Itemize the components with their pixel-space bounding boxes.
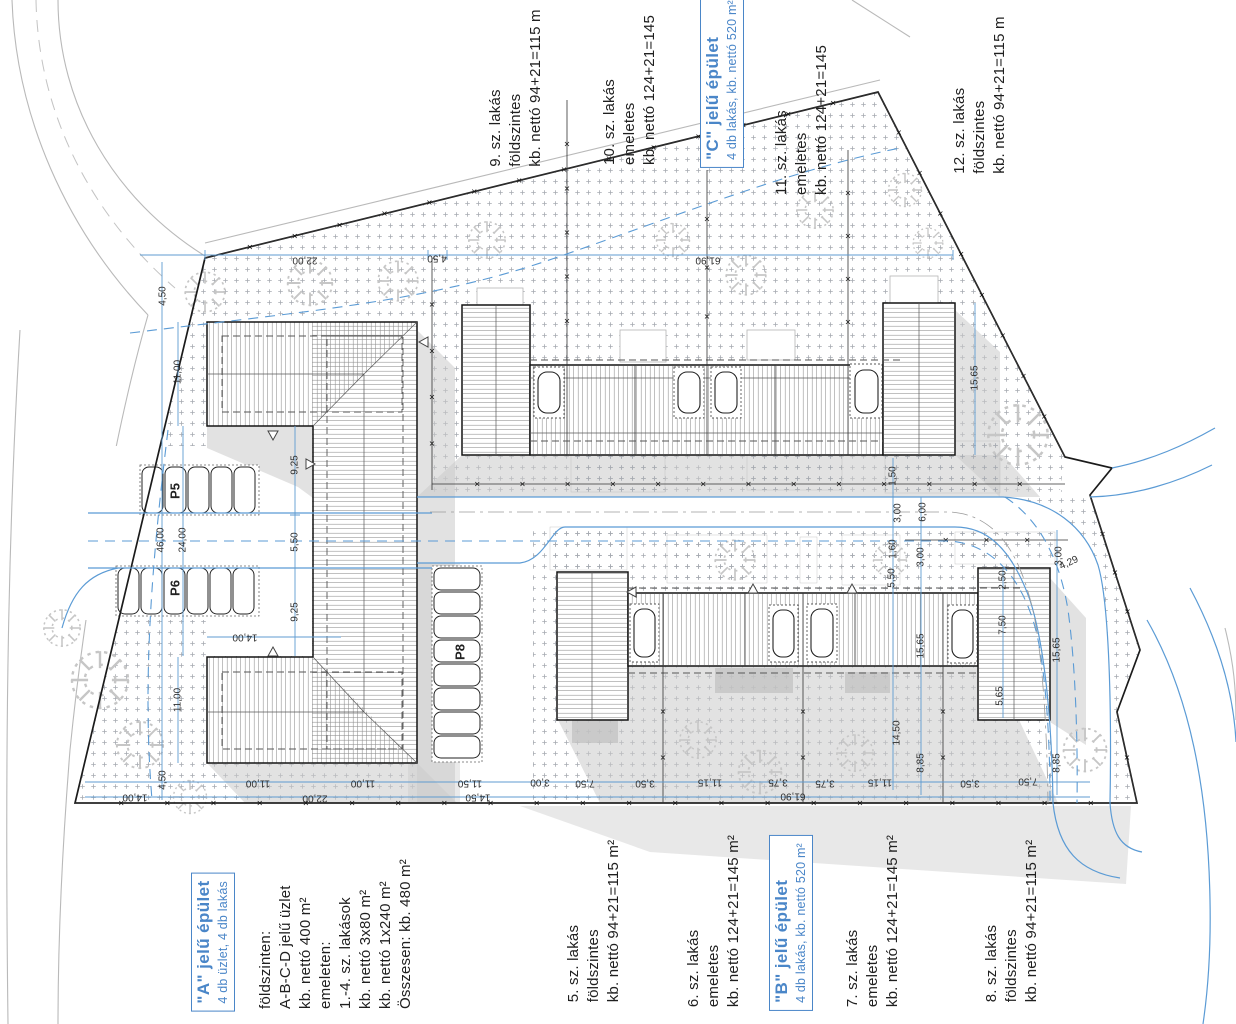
label-unit-11: 11. sz. lakás emeletes kb. nettó 124+21=…	[772, 45, 832, 195]
svg-text:×: ×	[999, 331, 1006, 340]
dim-label: 14,00	[232, 631, 257, 642]
svg-text:×: ×	[949, 799, 956, 808]
label-building-b: "B" jelű épület 4 db lakás, kb. nettó 52…	[769, 835, 813, 1011]
svg-text:×: ×	[704, 312, 711, 321]
dim-label: 11,15	[697, 776, 722, 787]
svg-text:×: ×	[336, 220, 343, 229]
unit-area: kb. nettó 124+21=145 m²	[724, 835, 744, 1007]
unit-name: 5. sz. lakás	[564, 840, 584, 1003]
site-plan-drawing: P5 P6 P8 ×××××××××××××××××××××××××××××××…	[0, 0, 1236, 1024]
svg-text:×: ×	[971, 480, 978, 489]
svg-text:×: ×	[429, 439, 436, 448]
detail-line: A-B-C-D jelű üzlet	[276, 859, 296, 1009]
svg-text:×: ×	[471, 187, 478, 196]
svg-text:×: ×	[718, 799, 725, 808]
svg-text:×: ×	[940, 753, 947, 762]
svg-text:×: ×	[958, 250, 965, 259]
svg-text:×: ×	[704, 214, 711, 223]
parking-p6: P6	[116, 566, 259, 616]
dim-label: 11,00	[173, 359, 184, 384]
svg-text:×: ×	[164, 799, 171, 808]
svg-text:×: ×	[381, 209, 388, 218]
svg-text:×: ×	[881, 480, 888, 489]
svg-text:×: ×	[1024, 536, 1031, 545]
svg-text:×: ×	[349, 799, 356, 808]
svg-text:×: ×	[395, 799, 402, 808]
dim-label: 3,00	[893, 503, 904, 523]
unit-area: kb. nettó 94+21=115 m	[526, 9, 546, 166]
dim-label: 22,00	[302, 792, 327, 803]
unit-name: 8. sz. lakás	[982, 840, 1002, 1003]
svg-text:×: ×	[516, 176, 523, 185]
label-unit-6: 6. sz. lakás emeletes kb. nettó 124+21=1…	[684, 835, 744, 1007]
svg-text:×: ×	[1020, 371, 1027, 380]
svg-text:×: ×	[845, 232, 852, 241]
label-unit-9: 9. sz. lakás földszintes kb. nettó 94+21…	[486, 9, 546, 166]
svg-text:×: ×	[1041, 799, 1048, 808]
svg-text:×: ×	[564, 140, 571, 149]
svg-text:×: ×	[429, 393, 436, 402]
parking-label-p6: P6	[167, 580, 182, 596]
detail-line: Összesen: kb. 480 m²	[396, 859, 416, 1009]
dim-label: 7,50	[998, 615, 1009, 635]
dim-label: 8,85	[916, 753, 927, 773]
dim-label: 15,65	[970, 365, 981, 390]
building-c-subtitle: 4 db lakás, kb. nettó 520 m²	[724, 0, 740, 160]
svg-text:×: ×	[580, 799, 587, 808]
svg-text:×: ×	[1099, 529, 1106, 538]
svg-text:×: ×	[810, 799, 817, 808]
unit-name: 11. sz. lakás	[772, 45, 792, 195]
dim-label: 11,00	[350, 777, 375, 788]
unit-name: 9. sz. lakás	[486, 9, 506, 166]
svg-text:×: ×	[564, 272, 571, 281]
dim-label: 3,50	[960, 777, 980, 788]
parking-label-p5: P5	[167, 483, 182, 499]
parking-label-p8: P8	[452, 644, 467, 660]
unit-area: kb. nettó 94+21=115 m²	[1022, 840, 1042, 1003]
svg-text:×: ×	[916, 169, 923, 178]
dim-label: 6,00	[918, 502, 929, 522]
svg-text:×: ×	[564, 480, 571, 489]
unit-area: kb. nettó 124+21=145	[640, 15, 660, 165]
label-building-a-details: földszinten: A-B-C-D jelű üzlet kb. nett…	[256, 859, 416, 1009]
dim-label: 14,50	[465, 791, 490, 802]
unit-type: földszintes	[584, 840, 604, 1003]
dim-label: 3,50	[635, 777, 655, 788]
svg-text:×: ×	[660, 753, 667, 762]
svg-text:×: ×	[800, 707, 807, 716]
svg-text:×: ×	[441, 799, 448, 808]
unit-area: kb. nettó 124+21=145 m²	[883, 835, 903, 1007]
svg-text:×: ×	[1016, 480, 1023, 489]
svg-text:×: ×	[942, 536, 949, 545]
dim-label: 61,90	[695, 254, 720, 265]
dim-label: 11,15	[867, 776, 892, 787]
svg-text:×: ×	[940, 707, 947, 716]
dim-label: 1,60	[888, 539, 899, 559]
label-unit-12: 12. sz. lakás földszintes kb. nettó 94+2…	[950, 16, 1010, 173]
building-a-title: "A" jelű épület	[193, 880, 215, 1003]
dim-label: 14,50	[892, 720, 903, 745]
detail-line: 1.-4. sz. lakások	[336, 859, 356, 1009]
svg-text:×: ×	[903, 799, 910, 808]
svg-text:×: ×	[533, 799, 540, 808]
dim-label: 14,00	[122, 791, 147, 802]
label-building-c: "C" jelű épület 4 db lakás, kb. nettó 52…	[700, 0, 744, 168]
dim-label: 3,00	[916, 547, 927, 567]
detail-line: emeleten:	[316, 859, 336, 1009]
unit-type: földszintes	[1002, 840, 1022, 1003]
svg-text:×: ×	[426, 198, 433, 207]
dim-label: 4,50	[158, 286, 169, 306]
unit-name: 6. sz. lakás	[684, 835, 704, 1007]
unit-area: kb. nettó 124+21=145	[812, 45, 832, 195]
svg-text:×: ×	[1124, 753, 1131, 762]
dim-label: 11,00	[173, 687, 184, 712]
svg-text:×: ×	[979, 290, 986, 299]
dim-label: 9,25	[290, 455, 301, 475]
svg-text:×: ×	[790, 480, 797, 489]
svg-text:×: ×	[672, 799, 679, 808]
dim-label: 24,00	[178, 527, 189, 552]
svg-text:×: ×	[564, 316, 571, 325]
label-unit-10: 10. sz. lakás emeletes kb. nettó 124+21=…	[600, 15, 660, 165]
svg-text:×: ×	[210, 799, 217, 808]
unit-name: 7. sz. lakás	[843, 835, 863, 1007]
svg-text:×: ×	[660, 707, 667, 716]
svg-text:×: ×	[995, 799, 1002, 808]
svg-text:×: ×	[256, 799, 263, 808]
svg-text:×: ×	[610, 480, 617, 489]
unit-name: 12. sz. lakás	[950, 16, 970, 173]
svg-text:×: ×	[474, 480, 481, 489]
parking-p8: P8	[432, 566, 482, 762]
detail-line: kb. nettó 400 m²	[296, 859, 316, 1009]
dim-label: 4,50	[427, 252, 447, 263]
svg-text:×: ×	[836, 480, 843, 489]
unit-type: emeletes	[863, 835, 883, 1007]
dim-label: 22,00	[292, 254, 317, 265]
unit-type: földszintes	[506, 9, 526, 166]
svg-text:×: ×	[564, 228, 571, 237]
svg-text:×: ×	[800, 753, 807, 762]
dim-label: 1,50	[888, 466, 899, 486]
dim-label: 5,65	[995, 686, 1006, 706]
detail-line: kb. nettó 1x240 m²	[376, 859, 396, 1009]
svg-text:×: ×	[561, 165, 568, 174]
svg-text:×: ×	[937, 209, 944, 218]
svg-text:×: ×	[700, 480, 707, 489]
dim-label: 61,90	[780, 790, 805, 801]
detail-line: földszinten:	[256, 859, 276, 1009]
dim-label: 15,65	[916, 633, 927, 658]
dim-label: 9,25	[290, 602, 301, 622]
label-unit-7: 7. sz. lakás emeletes kb. nettó 124+21=1…	[843, 835, 903, 1007]
svg-text:×: ×	[291, 231, 298, 240]
unit-type: emeletes	[792, 45, 812, 195]
label-unit-5: 5. sz. lakás földszintes kb. nettó 94+21…	[564, 840, 624, 1003]
dim-label: 3,00	[530, 776, 550, 787]
svg-text:×: ×	[845, 275, 852, 284]
label-unit-8: 8. sz. lakás földszintes kb. nettó 94+21…	[982, 840, 1042, 1003]
svg-text:×: ×	[1087, 799, 1094, 808]
unit-type: földszintes	[970, 16, 990, 173]
svg-text:×: ×	[857, 799, 864, 808]
building-b-title: "B" jelű épület	[771, 843, 793, 1003]
svg-text:×: ×	[564, 184, 571, 193]
parking-p5: P5	[140, 465, 259, 515]
svg-text:×: ×	[1112, 568, 1119, 577]
dim-label: 3,75	[768, 776, 788, 787]
svg-text:×: ×	[764, 799, 771, 808]
svg-text:×: ×	[845, 189, 852, 198]
svg-text:×: ×	[247, 242, 254, 251]
dim-label: 5,50	[290, 532, 301, 552]
building-c-title: "C" jelű épület	[702, 0, 724, 160]
building-a-subtitle: 4 db üzlet, 4 db lakás	[215, 880, 231, 1003]
svg-text:×: ×	[519, 480, 526, 489]
unit-area: kb. nettó 94+21=115 m²	[604, 840, 624, 1003]
svg-text:×: ×	[1124, 607, 1131, 616]
svg-text:×: ×	[926, 480, 933, 489]
dim-label: 15,65	[1052, 637, 1063, 662]
dim-label: 11,00	[245, 777, 270, 788]
building-b-subtitle: 4 db lakás, kb. nettó 520 m²	[793, 843, 809, 1003]
dim-label: 5,50	[887, 568, 898, 588]
detail-line: kb. nettó 3x80 m²	[356, 859, 376, 1009]
unit-type: emeletes	[704, 835, 724, 1007]
dim-label: 46,00	[156, 527, 167, 552]
dim-label: 8,85	[1052, 753, 1063, 773]
svg-text:×: ×	[655, 480, 662, 489]
svg-text:×: ×	[845, 318, 852, 327]
svg-text:×: ×	[429, 300, 436, 309]
dim-label: 7,50	[1018, 775, 1038, 786]
unit-area: kb. nettó 94+21=115 m	[990, 16, 1010, 173]
dim-label: 2,50	[998, 570, 1009, 590]
unit-type: emeletes	[620, 15, 640, 165]
svg-text:×: ×	[1041, 412, 1048, 421]
dim-label: 4,50	[158, 770, 169, 790]
label-building-a: "A" jelű épület 4 db üzlet, 4 db lakás	[191, 872, 235, 1011]
svg-text:×: ×	[626, 799, 633, 808]
svg-text:×: ×	[745, 480, 752, 489]
dim-label: 7,50	[575, 777, 595, 788]
dim-label: 3,75	[815, 777, 835, 788]
dim-label: 11,50	[457, 777, 482, 788]
unit-name: 10. sz. lakás	[600, 15, 620, 165]
svg-text:×: ×	[429, 346, 436, 355]
svg-text:×: ×	[895, 128, 902, 137]
